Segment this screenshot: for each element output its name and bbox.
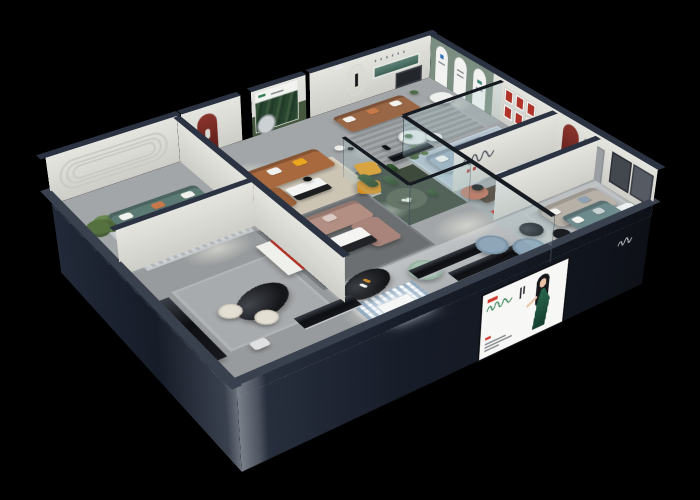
billboard-logo-script — [486, 293, 513, 315]
showroom-render — [0, 0, 700, 500]
poster-logo-green — [258, 93, 265, 98]
red-artwork — [503, 104, 512, 122]
pillow — [570, 216, 585, 224]
poster-text-line — [271, 89, 284, 95]
billboard-vertical-text — [523, 286, 525, 294]
pillow — [321, 213, 338, 222]
pillow — [576, 196, 592, 204]
bottle — [362, 278, 372, 283]
small-plant — [408, 89, 420, 95]
showroom-building — [52, 77, 652, 397]
pillow — [265, 167, 283, 176]
model-billboard — [477, 256, 570, 363]
cap-logo-chip — [335, 65, 342, 70]
billboard-woman — [526, 268, 559, 336]
pillow — [291, 158, 308, 167]
pillow — [342, 116, 357, 123]
arch-text-line — [438, 61, 445, 66]
mirror-sculpture — [355, 73, 358, 87]
parapet-script-logo — [617, 230, 640, 250]
pillow — [365, 108, 380, 115]
red-artwork — [504, 88, 513, 106]
arch-logo-teal — [477, 79, 482, 85]
red-artwork — [515, 94, 524, 112]
arch-logo-blue — [440, 54, 443, 60]
oval-mirror — [347, 61, 366, 99]
bottle — [359, 283, 369, 288]
pillow — [388, 100, 403, 107]
dark-wall-panel — [609, 151, 632, 193]
billboard-red-dot — [485, 336, 491, 341]
billboard-vertical-text — [519, 287, 522, 299]
arch-text-line — [457, 73, 464, 79]
